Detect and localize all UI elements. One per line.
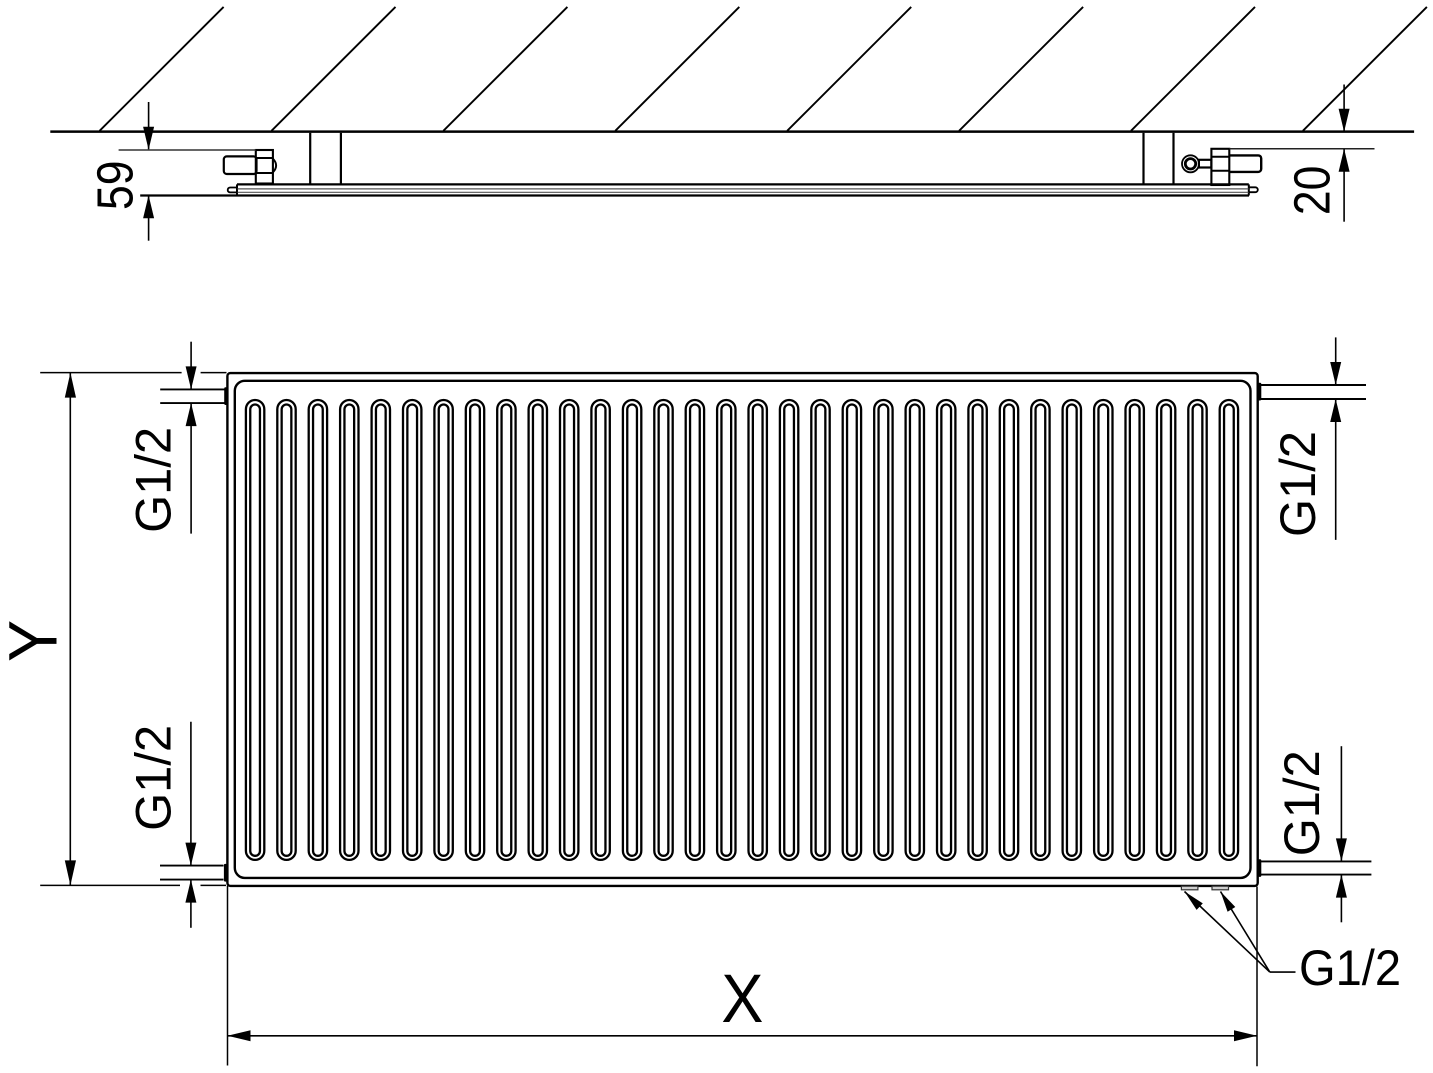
svg-text:G1/2: G1/2: [125, 725, 181, 831]
svg-text:G1/2: G1/2: [1270, 431, 1326, 537]
svg-text:G1/2: G1/2: [1299, 940, 1401, 996]
svg-text:G1/2: G1/2: [1274, 750, 1330, 856]
svg-text:X: X: [721, 960, 763, 1037]
svg-text:G1/2: G1/2: [125, 427, 181, 533]
svg-text:Y: Y: [0, 620, 71, 662]
svg-text:59: 59: [87, 160, 144, 210]
svg-text:20: 20: [1284, 166, 1341, 216]
